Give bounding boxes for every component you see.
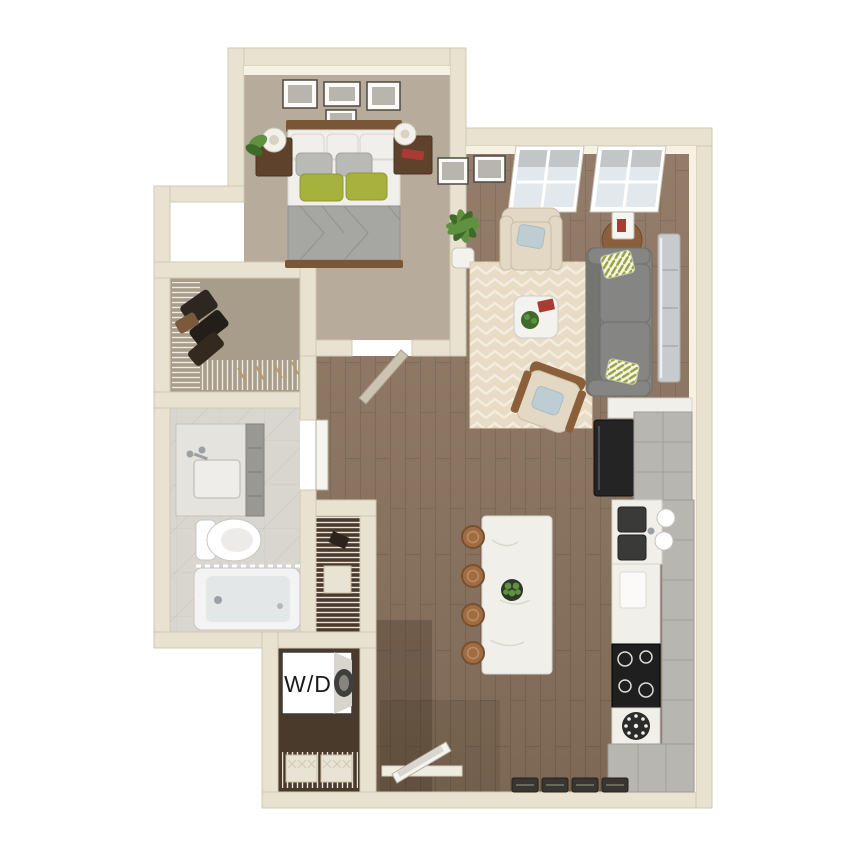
wall-bedroom-right [450, 48, 466, 356]
tv-console [658, 234, 680, 382]
sink-basin [618, 535, 646, 560]
wall-bedroom-bottom-right [412, 340, 450, 356]
wall-laundry-left [262, 632, 278, 808]
sofa [586, 248, 652, 396]
wallface-bedroom-top [244, 66, 450, 75]
wall-bedroom-top [228, 48, 466, 66]
decor-red [617, 219, 626, 232]
footboard [285, 260, 403, 268]
stool-icon [462, 526, 484, 548]
washer-dryer-label: W/D [284, 671, 332, 697]
vanity-sink [194, 460, 240, 498]
wall-bottom-outer [262, 792, 712, 808]
laundry-basket [286, 755, 317, 782]
dish-rack [622, 712, 650, 740]
faucet-handle [199, 447, 206, 454]
wall-bath-right-upper [300, 356, 316, 420]
cooktop [612, 644, 660, 708]
armchair-top [500, 208, 562, 270]
faucet-icon [187, 451, 194, 458]
laundry-basket [321, 755, 352, 782]
sofa-back [586, 252, 601, 392]
wall-closet-right [300, 262, 316, 356]
bathroom-door-open [316, 420, 328, 490]
bathtub [194, 566, 300, 630]
lamp-shade-top [401, 130, 410, 139]
wall-right-outer [696, 128, 712, 808]
stove [612, 644, 660, 708]
wall-bathroom-bottom [154, 632, 278, 648]
wall-hall-west [360, 516, 376, 792]
frame-art [288, 85, 312, 103]
plant-leaf [531, 318, 537, 324]
frame-art [329, 87, 355, 101]
linen-closet [316, 516, 360, 632]
stool-icon [462, 565, 484, 587]
frame-art [478, 160, 501, 178]
lamp-shade-top [269, 135, 279, 145]
sofa-armrest [588, 380, 650, 396]
stool-icon [462, 642, 484, 664]
floors [0, 0, 847, 847]
window-left [508, 146, 584, 212]
sink-basin [618, 507, 646, 532]
wall-linen-top [316, 500, 376, 516]
frame-art [442, 162, 464, 180]
floorplan-3d-render: W/D [0, 0, 847, 847]
wall-left-outer [154, 186, 170, 648]
frame-art [372, 87, 395, 105]
wall-bath-right-lower [300, 490, 316, 632]
wall-linen-laundry-divider [278, 632, 376, 648]
rack-dots [624, 714, 648, 738]
pillow-green [346, 173, 387, 200]
tub-drain [277, 603, 283, 609]
floorplan-page: W/D [0, 0, 847, 847]
stool-icon [462, 604, 484, 626]
pillow-gray [296, 153, 332, 176]
canister [657, 509, 675, 527]
wire-shelf-bottom [200, 360, 300, 390]
plant-leaf [524, 314, 530, 320]
window-right [590, 146, 666, 212]
cutting-board [620, 572, 646, 608]
bed [285, 120, 403, 268]
toilet [196, 519, 261, 561]
pillow-green [300, 174, 343, 201]
wall-living-top [450, 128, 712, 146]
toilet-seat [221, 528, 253, 552]
storage-basket [324, 566, 351, 593]
coffee-table [514, 296, 558, 338]
washer-door-glass [339, 675, 349, 691]
wall-bedroom-left [228, 48, 244, 202]
tub-faucet-icon [214, 596, 222, 604]
canister [655, 532, 673, 550]
faucet-icon [648, 528, 655, 535]
pillow-blue [516, 224, 545, 249]
bath-cabinet [246, 424, 264, 516]
wall-closet-bath-divider [154, 392, 316, 408]
